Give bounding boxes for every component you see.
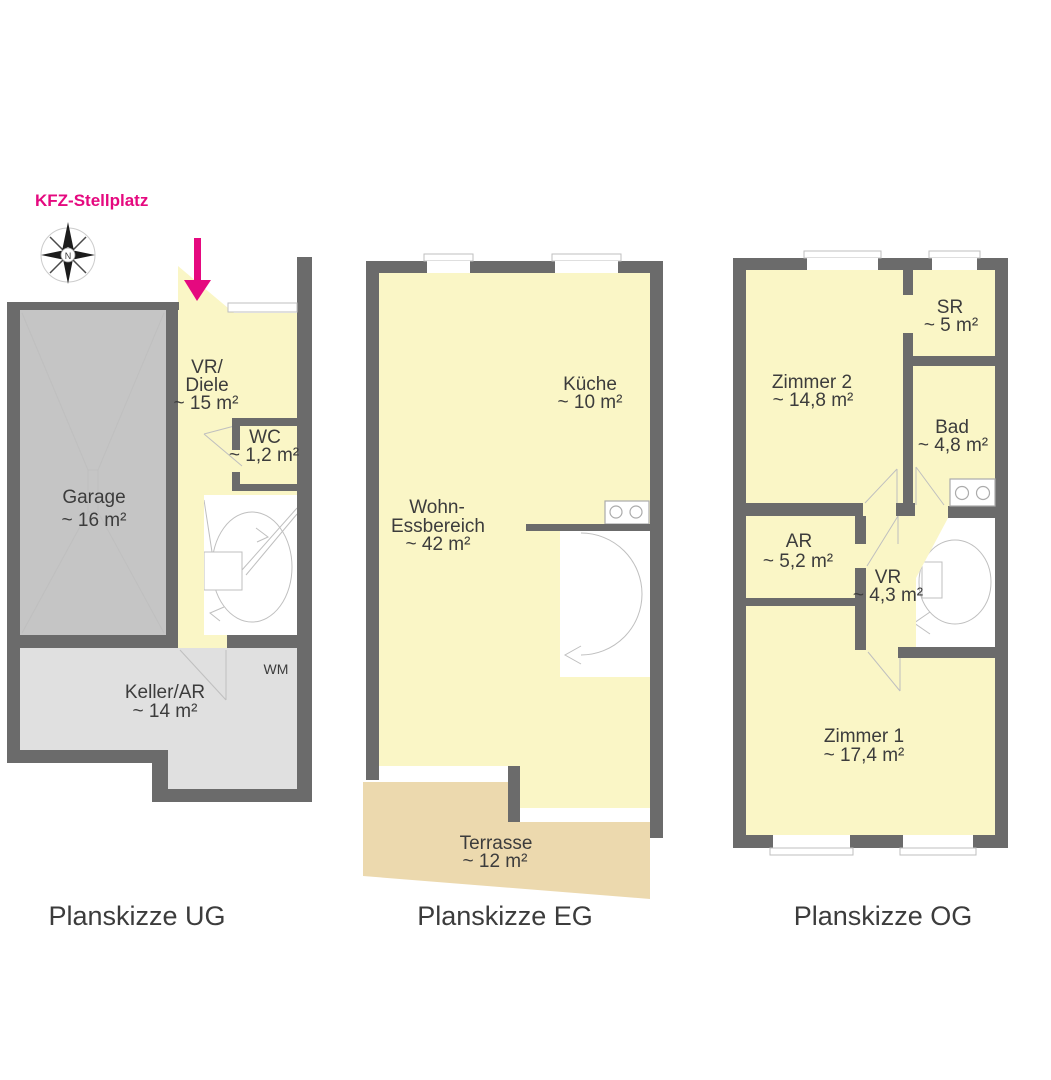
keller-area: ~ 14 m²	[133, 701, 198, 722]
wohn-area: ~ 42 m²	[406, 534, 471, 555]
parking-label: KFZ-Stellplatz	[35, 191, 148, 210]
plan-ug: KFZ-Stellplatz Garage ~ 16 m² VR/ Diele …	[7, 191, 312, 931]
plan-title-ug: Planskizze UG	[48, 901, 225, 931]
plan-og: Zimmer 2 ~ 14,8 m² SR ~ 5 m² Bad ~ 4,8 m…	[733, 251, 1008, 931]
plan-title-eg: Planskizze EG	[417, 901, 593, 931]
zimmer2-area: ~ 14,8 m²	[773, 390, 854, 411]
washbasin-icon	[950, 479, 995, 506]
compass-north-label: N	[65, 251, 72, 261]
stairs-icon-ug	[204, 495, 298, 635]
wm-label: WM	[264, 661, 289, 677]
floorplan-canvas: KFZ-Stellplatz Garage ~ 16 m² VR/ Diele …	[0, 0, 1051, 1080]
garage-name: Garage	[62, 487, 125, 508]
zimmer1-area: ~ 17,4 m²	[824, 745, 905, 766]
wc-area: ~ 1,2 m²	[229, 445, 299, 466]
ar-name: AR	[786, 531, 812, 552]
stove-icon	[605, 501, 649, 524]
bad-area: ~ 4,8 m²	[918, 435, 988, 456]
compass-icon: N	[41, 222, 95, 284]
room-garage	[20, 310, 166, 635]
garage-area: ~ 16 m²	[62, 510, 127, 531]
vr-area: ~ 4,3 m²	[853, 585, 923, 606]
sr-area: ~ 5 m²	[924, 315, 978, 336]
terrasse-area: ~ 12 m²	[463, 851, 528, 872]
wohn-name-1: Wohn-	[409, 497, 465, 518]
plan-eg: Küche ~ 10 m² Wohn- Essbereich ~ 42 m² T…	[363, 254, 663, 931]
stairs-icon-eg	[560, 531, 650, 677]
floorplan-page: { "colors": { "wall": "#6b6b6b", "room":…	[0, 0, 1051, 1080]
kueche-area: ~ 10 m²	[558, 392, 623, 413]
zimmer1-name: Zimmer 1	[824, 726, 904, 747]
ug-window	[228, 303, 297, 312]
ar-area: ~ 5,2 m²	[763, 551, 833, 572]
keller-name: Keller/AR	[125, 682, 205, 703]
vr-diele-area: ~ 15 m²	[174, 393, 239, 414]
plan-title-og: Planskizze OG	[794, 901, 973, 931]
